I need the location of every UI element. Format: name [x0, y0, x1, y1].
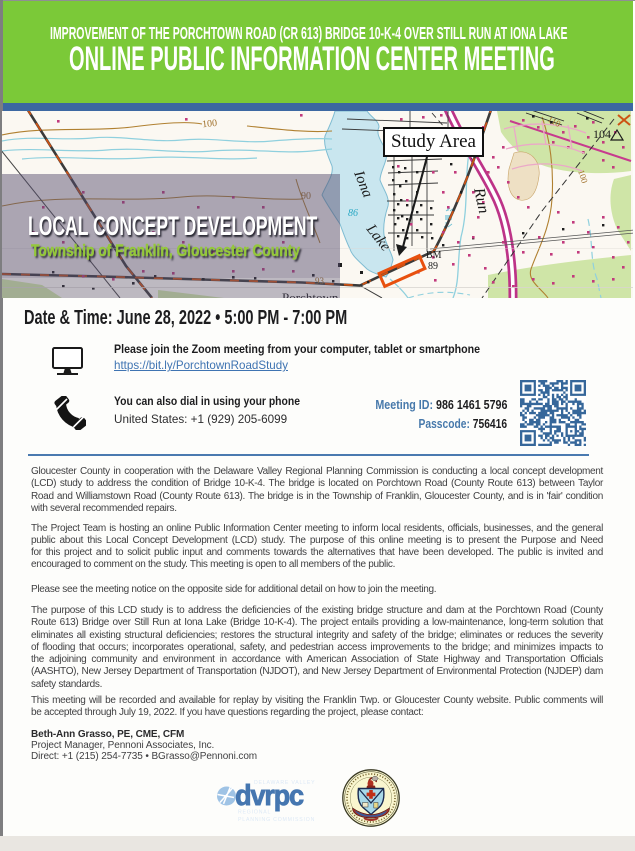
- svg-text:dvrpc: dvrpc: [235, 779, 303, 811]
- svg-text:104: 104: [593, 127, 611, 141]
- svg-text:100: 100: [202, 118, 218, 131]
- svg-text:BM: BM: [426, 250, 442, 261]
- svg-text:89: 89: [428, 261, 438, 272]
- svg-text:PLANNING COMMISSION: PLANNING COMMISSION: [238, 817, 315, 823]
- svg-text:REGIONAL: REGIONAL: [238, 810, 271, 816]
